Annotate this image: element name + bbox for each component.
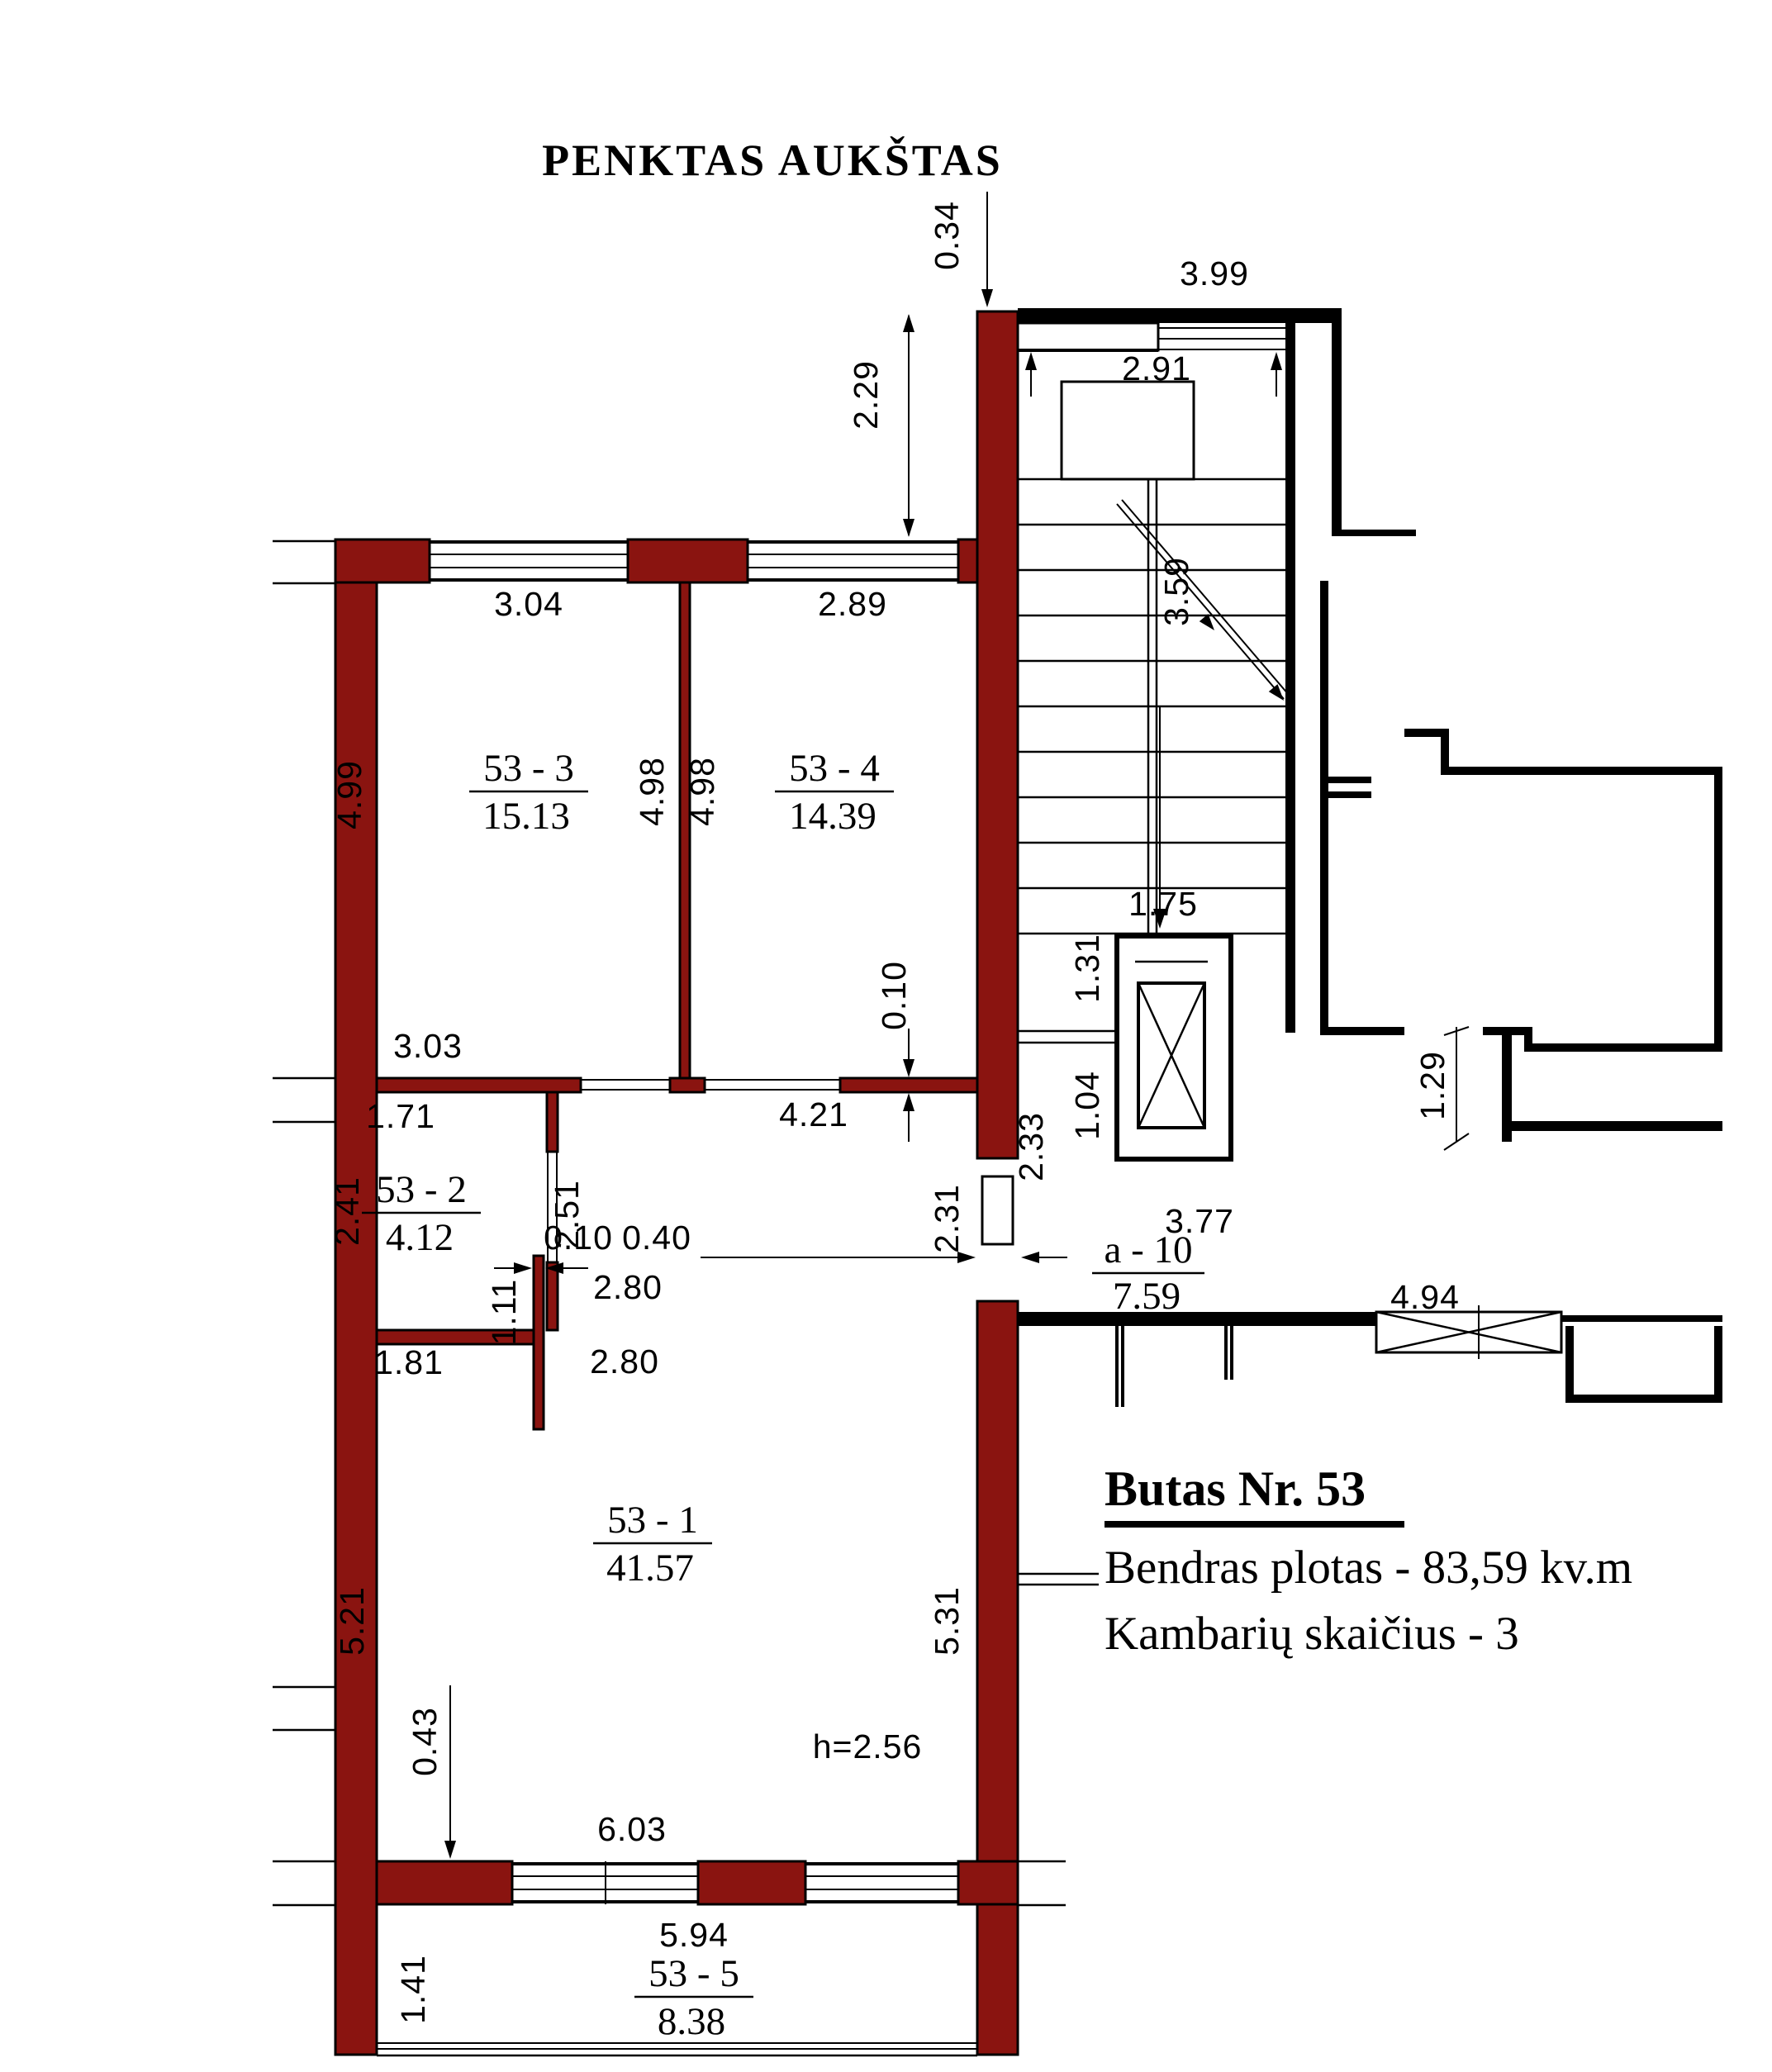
stairwell (1018, 382, 1289, 934)
dim-2-80-b: 2.80 (590, 1343, 659, 1381)
stair-direction-arrow (1117, 500, 1289, 929)
elevator (1117, 936, 1231, 1159)
dim-4-99: 4.99 (330, 760, 368, 829)
wall-53-1-bottom-pier2 (698, 1861, 805, 1904)
dim-5-94: 5.94 (659, 1916, 729, 1954)
building-top-right-wall (1446, 767, 1722, 775)
elevator-shaft-x (1138, 983, 1204, 1128)
dim-1-41: 1.41 (394, 1955, 432, 2024)
wall-right-lower (977, 1301, 1018, 2055)
page-title: PENKTAS AUKŠTAS (542, 135, 1003, 185)
dim-0-34: 0.34 (928, 201, 966, 270)
dim-4-98-right: 4.98 (683, 757, 721, 826)
neighbor-wall-v1 (1565, 1326, 1574, 1400)
wall-right-upper (977, 311, 1018, 1158)
dim-2-89: 2.89 (818, 585, 887, 623)
dim-5-21: 5.21 (333, 1586, 371, 1656)
dim-3-77: 3.77 (1165, 1202, 1234, 1240)
wall-rooms-bottom-c (840, 1078, 977, 1092)
wall-top-pier1 (335, 539, 430, 582)
info-block: Butas Nr. 53 Bendras plotas - 83,59 kv.m… (1105, 1461, 1632, 1660)
outer-wall-right-of-stairs (1332, 323, 1342, 536)
dim-1-29: 1.29 (1413, 1051, 1451, 1120)
floor-plan-page: PENKTAS AUKŠTAS (0, 0, 1772, 2072)
dim-2-80-a: 2.80 (593, 1268, 663, 1306)
window-53-3 (430, 539, 628, 582)
wall-stub-1-11 (534, 1256, 544, 1429)
dim-1-04: 1.04 (1068, 1071, 1106, 1140)
balcony-railing (377, 2043, 977, 2055)
corridor-wall-vertical (1320, 581, 1328, 1027)
dim-1-71: 1.71 (366, 1097, 435, 1135)
stair-right-wall (1285, 323, 1295, 1033)
corridor-wall-h2 (1483, 1027, 1528, 1035)
dim-5-31: 5.31 (928, 1586, 966, 1656)
dim-4-98-left: 4.98 (633, 757, 671, 826)
lobby-wall-right (1561, 1315, 1722, 1322)
wall-top-pier2 (628, 539, 748, 582)
stub-below-1b (1121, 1326, 1124, 1407)
dim-0-10-wall: 0.10 (875, 961, 913, 1030)
info-heading: Butas Nr. 53 (1105, 1461, 1366, 1516)
dim-0-40: 0.40 (622, 1219, 691, 1257)
dim-2-51: 2.51 (548, 1180, 586, 1249)
dim-3-03: 3.03 (393, 1027, 463, 1065)
lobby-bottom-wall (1018, 1312, 1376, 1326)
outer-wall-stub (1342, 530, 1416, 536)
dim-1-11: 1.11 (485, 1279, 523, 1346)
stair-landing (1062, 382, 1194, 479)
door-leaf (982, 1176, 1013, 1244)
wall-53-1-bottom-pier3 (958, 1861, 1018, 1904)
wall-room-divider (680, 582, 690, 1078)
corridor-stub-a (1320, 777, 1371, 783)
stub-below-1a (1115, 1326, 1119, 1407)
dim-3-99: 3.99 (1180, 254, 1249, 292)
building-right-wall (1714, 772, 1722, 1052)
dim-1-31: 1.31 (1068, 934, 1106, 1003)
stair-top-wall (1018, 308, 1342, 323)
dim-2-41: 2.41 (328, 1176, 366, 1246)
lobby-window-x (1376, 1312, 1561, 1352)
dim-4-94: 4.94 (1390, 1278, 1460, 1316)
corridor-wall-h3 (1532, 1043, 1722, 1052)
dim-3-59: 3.59 (1157, 557, 1195, 626)
room-53-4-name: 53 - 4 (789, 747, 880, 790)
room-53-1-area: 41.57 (606, 1547, 694, 1590)
dim-0-43: 0.43 (406, 1707, 444, 1776)
room-53-2-name: 53 - 2 (376, 1168, 467, 1211)
info-rooms-count: Kambarių skaičius - 3 (1105, 1608, 1519, 1660)
dim-1-75: 1.75 (1128, 885, 1198, 923)
room-53-3-name: 53 - 3 (483, 747, 574, 790)
neighbor-wall-h (1565, 1395, 1722, 1403)
wall-53-2-stub-bottom (547, 1262, 558, 1330)
room-a10-area: 7.59 (1113, 1275, 1181, 1318)
corridor-wall-h1 (1320, 1027, 1404, 1035)
building-step-h (1404, 729, 1449, 737)
dim-1-81: 1.81 (374, 1343, 444, 1381)
niche-wall-h (1512, 1121, 1722, 1131)
corridor-jog (1524, 1027, 1532, 1052)
corridor-stub-b (1320, 791, 1371, 798)
wall-53-1-bottom-pier1 (377, 1861, 512, 1904)
neighbor-wall-v2 (1714, 1326, 1722, 1403)
niche-wall-v (1502, 1035, 1512, 1142)
room-53-5-name: 53 - 5 (648, 1952, 739, 1995)
window-53-1-b (805, 1864, 958, 1902)
room-53-4-area: 14.39 (789, 795, 876, 838)
info-total-area: Bendras plotas - 83,59 kv.m (1105, 1542, 1632, 1594)
floor-plan-drawing: PENKTAS AUKŠTAS (0, 0, 1772, 2072)
stair-steps (1018, 479, 1285, 934)
wall-rooms-bottom-a (377, 1078, 581, 1092)
room-53-2-area: 4.12 (386, 1216, 454, 1259)
stub-below-2a (1224, 1326, 1228, 1380)
window-53-4 (748, 539, 958, 582)
stair-window-bay (1018, 323, 1158, 350)
window-53-1-a (512, 1861, 698, 1904)
room-53-1-name: 53 - 1 (607, 1499, 698, 1542)
dim-2-29: 2.29 (847, 360, 885, 430)
dim-3-04: 3.04 (494, 585, 563, 623)
stub-below-2b (1230, 1326, 1233, 1380)
wall-rooms-bottom-b (670, 1078, 705, 1092)
dim-2-33: 2.33 (1012, 1112, 1050, 1181)
room-53-5-area: 8.38 (658, 2000, 725, 2043)
dim-4-21: 4.21 (779, 1095, 848, 1133)
dim-2-91: 2.91 (1122, 349, 1191, 387)
room-53-3-area: 15.13 (482, 795, 570, 838)
dim-2-31: 2.31 (928, 1184, 966, 1253)
dim-6-03: 6.03 (597, 1810, 667, 1848)
dim-h-2-56: h=2.56 (813, 1727, 923, 1765)
wall-53-2-stub-top (547, 1092, 558, 1152)
